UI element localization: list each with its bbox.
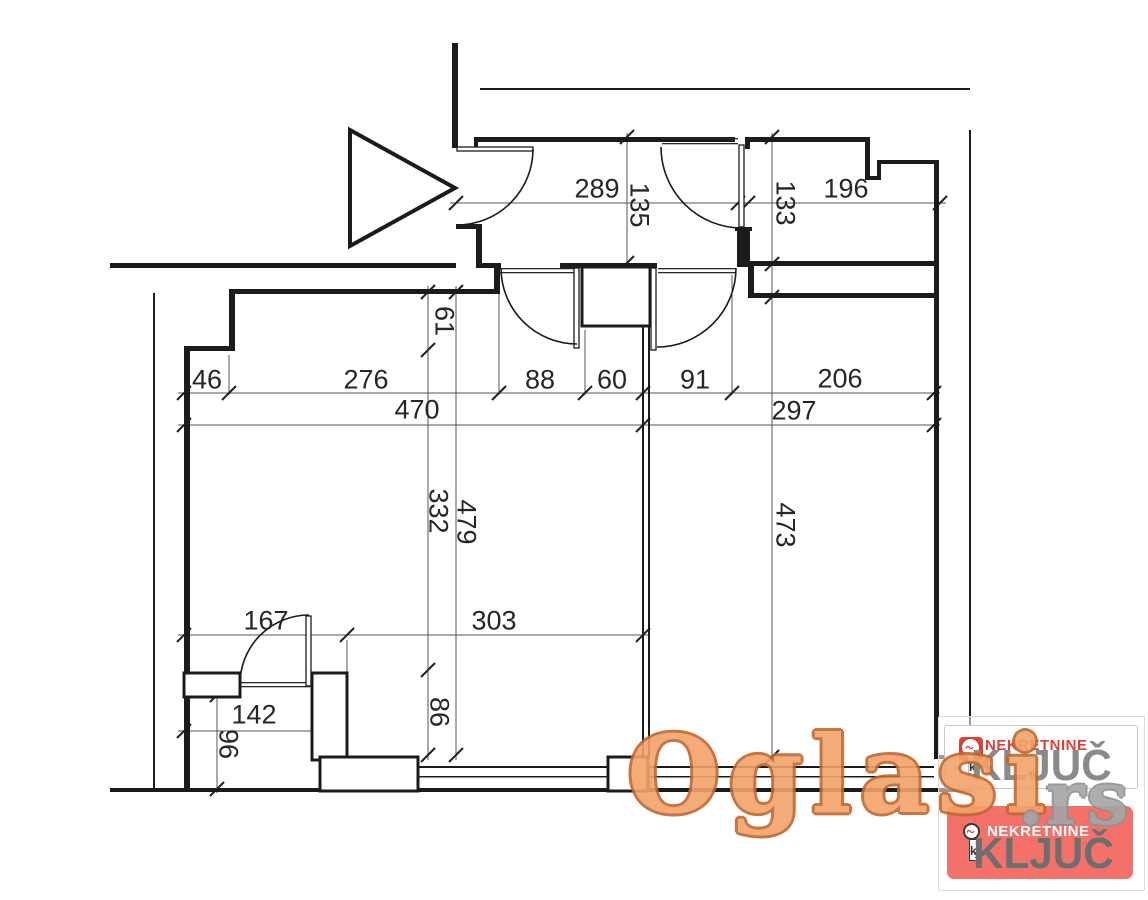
agency-badge-primary: k NEKRETNINE KLJUČ: [944, 725, 1138, 789]
dim-label-206: 206: [817, 366, 862, 393]
floor-plan-canvas: 289 135 133 196 46 276 88 60 91 206 470 …: [0, 0, 1148, 900]
door-leaf: [574, 268, 579, 348]
wall-segment: [184, 346, 235, 351]
door-leaf: [651, 268, 656, 350]
dim-label-91: 91: [680, 367, 710, 394]
wall-segment: [184, 346, 190, 678]
wall-segment: [877, 160, 938, 164]
dim-label-332: 332: [425, 488, 452, 533]
dim-label-289: 289: [574, 176, 619, 203]
dim-label-479: 479: [453, 499, 480, 544]
dim-label-135: 135: [626, 182, 653, 227]
threshold-line: [500, 268, 577, 269]
door-leaf: [457, 147, 533, 151]
wall-segment: [110, 788, 972, 792]
wall-segment: [418, 776, 608, 778]
door-swing-arc: [661, 147, 742, 228]
entrance-arrow-icon: [350, 130, 455, 246]
dim-label-473: 473: [772, 502, 799, 547]
wall-segment: [184, 694, 190, 792]
wall-segment: [476, 224, 482, 268]
wall-segment: [642, 268, 644, 757]
dim-label-133: 133: [772, 180, 799, 225]
boundary-line: [969, 130, 971, 790]
wall-segment: [480, 263, 501, 268]
dim-label-86: 86: [426, 697, 453, 727]
dim-label-470: 470: [394, 397, 439, 424]
threshold-line: [240, 686, 310, 687]
dim-label-196: 196: [823, 176, 868, 203]
threshold-line: [658, 272, 736, 273]
threshold-line: [500, 272, 577, 273]
door-leaf: [739, 145, 744, 227]
duct-shaft: [582, 267, 650, 326]
wall-segment: [648, 766, 934, 768]
wall-segment: [110, 263, 456, 268]
dim-label-88: 88: [525, 367, 555, 394]
dim-label-46: 46: [192, 367, 222, 394]
wall-segment: [750, 137, 868, 142]
threshold-line: [662, 143, 738, 144]
wall-segment: [418, 766, 608, 768]
boundary-line: [480, 88, 970, 90]
wall-segment: [745, 137, 750, 149]
wall-segment: [229, 289, 235, 351]
wall-pier: [312, 673, 347, 760]
dim-label-60: 60: [597, 367, 627, 394]
dim-label-167: 167: [243, 608, 288, 635]
wall-segment: [748, 266, 754, 293]
dim-label-276: 276: [343, 367, 388, 394]
wall-segment: [477, 137, 735, 142]
dim-label-96: 96: [215, 729, 242, 759]
wall-segment: [934, 160, 939, 757]
central-wall-pier: [608, 757, 648, 791]
door-leaf: [306, 616, 311, 686]
wall-foot: [320, 757, 418, 791]
threshold-line: [240, 682, 310, 683]
agency-badge-secondary: k NEKRETNINE KLJUČ: [947, 806, 1133, 879]
wall-segment: [648, 776, 934, 778]
wall-segment: [738, 261, 938, 266]
wall-segment: [748, 293, 937, 298]
door-swing-arc: [457, 149, 533, 225]
dim-label-61: 61: [431, 306, 458, 336]
wall-segment: [452, 43, 458, 148]
threshold-line: [658, 268, 736, 269]
boundary-line: [153, 293, 155, 790]
door-swing-arc: [501, 268, 577, 344]
dim-label-297: 297: [771, 398, 816, 425]
door-swing-arc: [657, 268, 736, 347]
wall-segment: [648, 268, 650, 757]
partition-wall: [184, 673, 240, 697]
agency-name-text: KLJUČ: [973, 832, 1114, 876]
wall-segment: [229, 289, 500, 294]
agency-name-text: KLJUČ: [971, 744, 1112, 788]
dim-label-303: 303: [471, 608, 516, 635]
threshold-line: [662, 138, 738, 139]
dim-label-142: 142: [231, 702, 276, 729]
